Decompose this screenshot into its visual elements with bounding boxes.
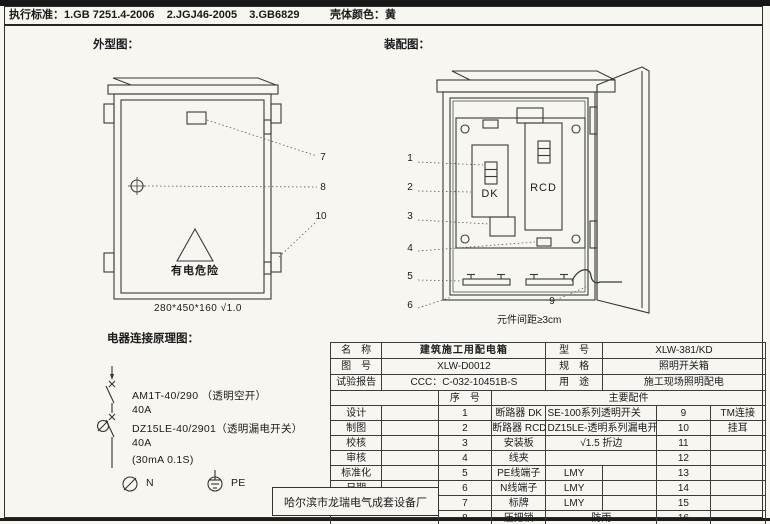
dk-breaker-label: DK xyxy=(472,188,508,200)
part-no2: 9 xyxy=(657,406,710,421)
part-val2 xyxy=(710,436,765,451)
pe-label: PE xyxy=(231,477,246,489)
part-no: 4 xyxy=(438,451,491,466)
usage-value: 施工现场照明配电 xyxy=(602,375,765,391)
part-name: 标牌 xyxy=(492,496,546,511)
parts-row: 校核 3 安装板 √1.5 折边 11 xyxy=(331,436,766,451)
standards-label: 执行标准： xyxy=(9,9,64,21)
part-no: 8 xyxy=(438,511,491,524)
main-parts-header: 主要配件 xyxy=(492,391,766,406)
parts-header-row: 序 号 主要配件 xyxy=(331,391,766,406)
part-name: 线夹 xyxy=(492,451,546,466)
part-spec xyxy=(546,451,657,466)
sig-check: 校核 xyxy=(331,436,382,451)
electric-danger-label: 有电危险 xyxy=(155,262,235,278)
sig-blank xyxy=(382,421,438,436)
assembly-section-title: 装配图： xyxy=(384,36,430,52)
seq-header: 序 号 xyxy=(438,391,491,406)
callout-10: 10 xyxy=(313,211,329,222)
part-no: 7 xyxy=(438,496,491,511)
spec-blank xyxy=(602,466,656,481)
part-spec: √1.5 折边 xyxy=(546,436,657,451)
part-val2 xyxy=(710,496,765,511)
part-no2: 13 xyxy=(657,466,710,481)
schematic-line-amp1: 40A xyxy=(132,404,152,416)
part-name: N线端子 xyxy=(492,481,546,496)
part-val2: 挂耳 xyxy=(710,421,765,436)
part-no: 5 xyxy=(438,466,491,481)
outline-section-title: 外型图： xyxy=(93,36,139,52)
callout-6: 6 xyxy=(402,300,418,311)
box-name: 建筑施工用配电箱 xyxy=(382,343,546,359)
part-spec: 防雨 xyxy=(546,511,657,524)
sig-blank xyxy=(382,466,438,481)
standards-header-strip: 执行标准：1.GB 7251.4-2006 2.JGJ46-2005 3.GB6… xyxy=(4,6,763,26)
sig-standardize: 标准化 xyxy=(331,466,382,481)
part-no2: 12 xyxy=(657,451,710,466)
shell-color-text: 壳体颜色：黄 xyxy=(330,6,396,24)
parts-row: 标准化 5 PE线端子 LMY 13 xyxy=(331,466,766,481)
part-name: 安装板 xyxy=(492,436,546,451)
sig-blank xyxy=(382,436,438,451)
part-spec: LMY xyxy=(546,481,602,496)
sig-blank xyxy=(382,451,438,466)
sig-blank xyxy=(382,406,438,421)
callout-8: 8 xyxy=(315,182,331,193)
part-no: 3 xyxy=(438,436,491,451)
test-report-value: CCC：C-032-10451B-S xyxy=(382,375,546,391)
sig-draft: 制图 xyxy=(331,421,382,436)
callout-7: 7 xyxy=(315,152,331,163)
spec-value: 照明开关箱 xyxy=(602,359,765,375)
test-report-label: 试验报告 xyxy=(331,375,382,391)
info-row: 名 称 建筑施工用配电箱 型 号 XLW-381/KD xyxy=(331,343,766,359)
parts-row: 制图 2 断路器 RCD DZ15LE-透明系列漏电开 10 挂耳 xyxy=(331,421,766,436)
spec-blank xyxy=(602,481,656,496)
part-no: 2 xyxy=(438,421,491,436)
part-name: 断路器 RCD xyxy=(492,421,546,436)
info-row: 试验报告 CCC：C-032-10451B-S 用 途 施工现场照明配电 xyxy=(331,375,766,391)
name-label: 名 称 xyxy=(331,343,382,359)
part-name: 断路器 DK xyxy=(492,406,546,421)
part-spec: LMY xyxy=(546,466,602,481)
part-no: 6 xyxy=(438,481,491,496)
factory-name: 哈尔滨市龙瑞电气成套设备厂 xyxy=(284,494,427,510)
part-spec: SE-100系列透明开关 xyxy=(546,406,657,421)
callout-9: 9 xyxy=(544,296,560,307)
model-label: 型 号 xyxy=(546,343,602,359)
shell-color-value: 黄 xyxy=(385,9,396,21)
shell-color-label: 壳体颜色： xyxy=(330,9,385,21)
part-val2 xyxy=(710,466,765,481)
empty-cell xyxy=(331,391,439,406)
spec-label: 规 格 xyxy=(546,359,602,375)
box-dimensions-label: 280*450*160 √1.0 xyxy=(128,303,268,314)
schematic-section-title: 电器连接原理图： xyxy=(107,330,199,346)
part-val2: TM连接 xyxy=(710,406,765,421)
schematic-line-breaker2: DZ15LE-40/2901（透明漏电开关） xyxy=(132,421,303,436)
schematic-line-leakage: (30mA 0.1S) xyxy=(132,454,194,466)
schematic-line-amp2: 40A xyxy=(132,437,152,449)
part-val2 xyxy=(710,481,765,496)
part-no2: 16 xyxy=(657,511,710,524)
part-val2 xyxy=(710,451,765,466)
part-no2: 14 xyxy=(657,481,710,496)
part-no2: 10 xyxy=(657,421,710,436)
part-no: 1 xyxy=(438,406,491,421)
usage-label: 用 途 xyxy=(546,375,602,391)
part-no2: 15 xyxy=(657,496,710,511)
sig-design: 设计 xyxy=(331,406,382,421)
part-name: PE线端子 xyxy=(492,466,546,481)
component-spacing-note: 元件间距≥3cm xyxy=(497,311,561,326)
part-spec: LMY xyxy=(546,496,602,511)
part-val2 xyxy=(710,511,765,524)
part-no2: 11 xyxy=(657,436,710,451)
standards-text: 执行标准：1.GB 7251.4-2006 2.JGJ46-2005 3.GB6… xyxy=(9,6,299,24)
neutral-label: N xyxy=(146,477,154,489)
schematic-line-breaker1: AM1T-40/290 （透明空开） xyxy=(132,388,266,403)
factory-name-box: 哈尔滨市龙瑞电气成套设备厂 xyxy=(272,487,439,516)
drawing-no-value: XLW-D0012 xyxy=(382,359,546,375)
model-value: XLW-381/KD xyxy=(602,343,765,359)
callout-1: 1 xyxy=(402,153,418,164)
sig-review: 审核 xyxy=(331,451,382,466)
standards-value: 1.GB 7251.4-2006 2.JGJ46-2005 3.GB6829 xyxy=(64,9,299,21)
parts-row: 设计 1 断路器 DK SE-100系列透明开关 9 TM连接 xyxy=(331,406,766,421)
part-spec: DZ15LE-透明系列漏电开 xyxy=(546,421,657,436)
callout-2: 2 xyxy=(402,182,418,193)
drawing-sheet: 执行标准：1.GB 7251.4-2006 2.JGJ46-2005 3.GB6… xyxy=(0,0,770,524)
rcd-breaker-label: RCD xyxy=(525,182,562,194)
callout-5: 5 xyxy=(402,271,418,282)
parts-row: 审核 4 线夹 12 xyxy=(331,451,766,466)
info-row: 图 号 XLW-D0012 规 格 照明开关箱 xyxy=(331,359,766,375)
drawing-no-label: 图 号 xyxy=(331,359,382,375)
spec-blank xyxy=(602,496,656,511)
callout-4: 4 xyxy=(402,243,418,254)
part-name: 压把锁 xyxy=(492,511,546,524)
callout-3: 3 xyxy=(402,211,418,222)
